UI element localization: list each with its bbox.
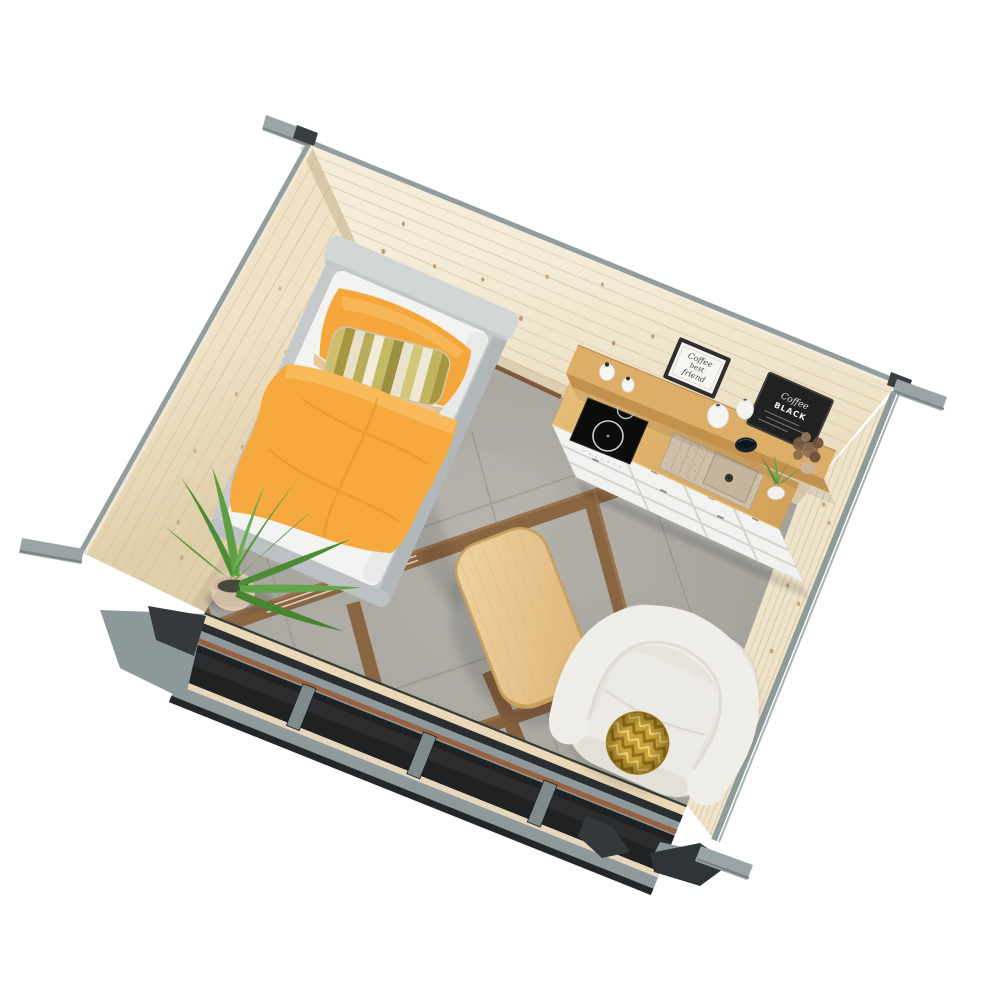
- render-canvas: Coffee best friend Coffee BLACK: [0, 0, 997, 1000]
- wood-knot: [176, 520, 179, 525]
- wood-knot: [402, 222, 405, 227]
- wood-knot: [770, 648, 774, 653]
- wood-knot: [546, 275, 549, 279]
- wood-knot: [279, 287, 282, 291]
- wood-knot: [381, 249, 385, 254]
- wood-knot: [519, 316, 523, 321]
- wood-knot: [433, 264, 436, 268]
- wood-knot: [481, 277, 484, 281]
- wood-knot: [612, 341, 616, 346]
- dark-bowl: [735, 438, 757, 453]
- dried-bouquet-pot: [801, 462, 816, 474]
- wood-knot: [822, 502, 826, 507]
- small-plant-pot: [768, 487, 785, 500]
- wood-knot: [601, 283, 604, 287]
- wood-knot: [235, 392, 238, 396]
- wood-knot: [193, 449, 196, 453]
- wood-knot: [828, 521, 831, 525]
- wood-knot: [797, 602, 800, 607]
- wood-knot: [180, 555, 184, 560]
- wood-knot: [651, 334, 654, 338]
- cabin-interior-render: Coffee best friend Coffee BLACK: [0, 0, 997, 1000]
